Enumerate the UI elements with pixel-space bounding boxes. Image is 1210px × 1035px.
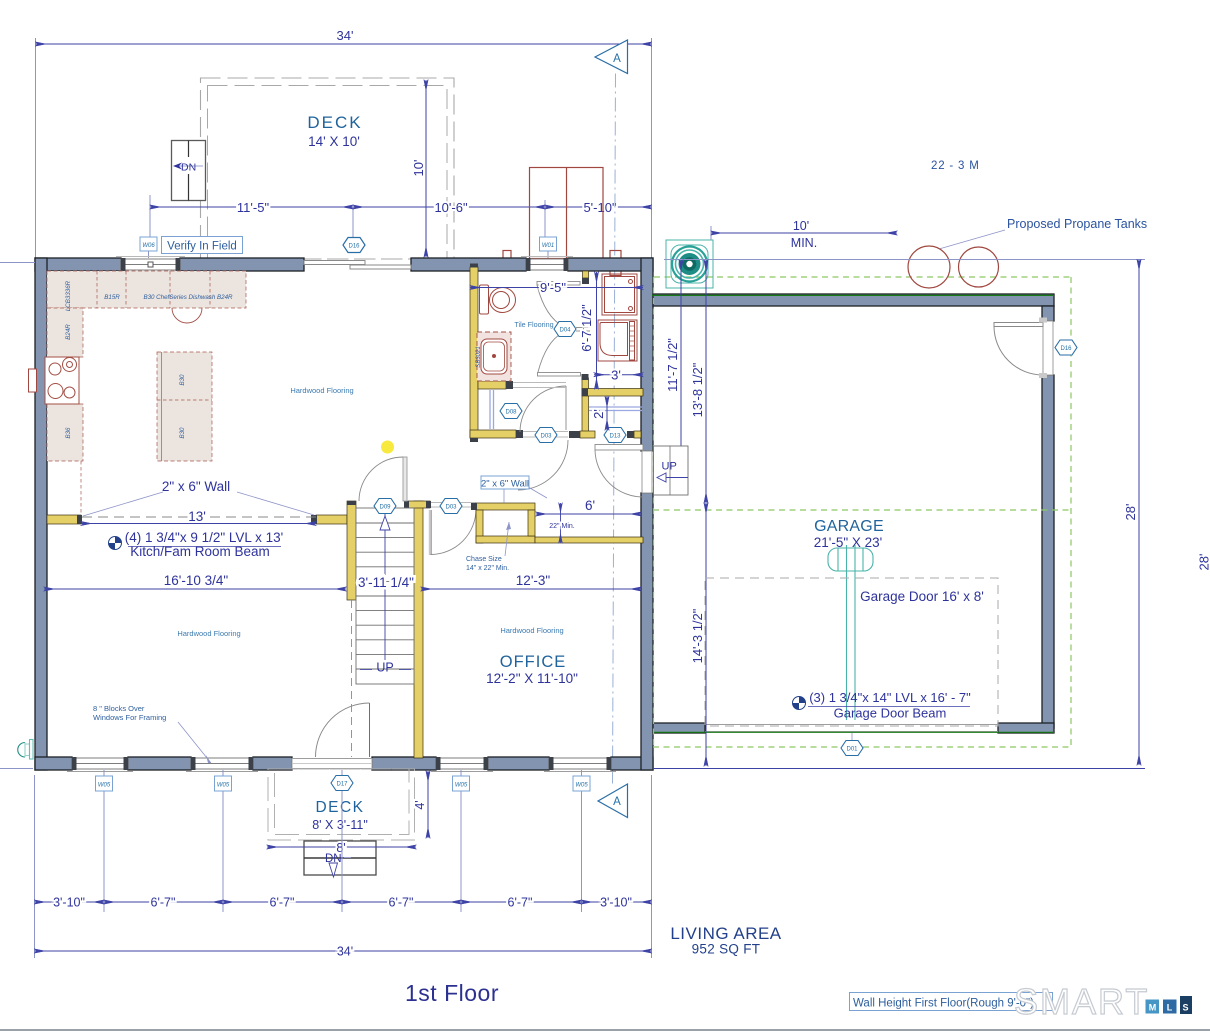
svg-text:S: S bbox=[1182, 1003, 1188, 1013]
svg-text:4': 4' bbox=[413, 800, 427, 809]
svg-text:D03: D03 bbox=[540, 434, 552, 440]
svg-text:M: M bbox=[1149, 1003, 1157, 1013]
svg-text:Wall Height First Floor(Rough: Wall Height First Floor(Rough 9'-0") bbox=[853, 998, 1034, 1010]
svg-text:2" x 6" Wall: 2" x 6" Wall bbox=[481, 479, 529, 490]
svg-text:3'-10": 3'-10" bbox=[600, 896, 632, 910]
svg-text:14' X 10': 14' X 10' bbox=[308, 134, 360, 149]
svg-text:13': 13' bbox=[188, 509, 206, 524]
svg-text:11'-5": 11'-5" bbox=[237, 200, 270, 215]
svg-text:D16: D16 bbox=[348, 244, 360, 250]
svg-text:DECK: DECK bbox=[307, 113, 362, 132]
svg-text:(4) 1 3/4"x 9 1/2" LVL x 13': (4) 1 3/4"x 9 1/2" LVL x 13' bbox=[125, 530, 284, 545]
svg-text:Hardwood Flooring: Hardwood Flooring bbox=[500, 626, 563, 635]
svg-text:28': 28' bbox=[1197, 554, 1210, 571]
svg-text:W06: W06 bbox=[142, 243, 155, 249]
svg-text:6'-7 1/2": 6'-7 1/2" bbox=[579, 304, 594, 352]
svg-text:13'-8 1/2": 13'-8 1/2" bbox=[690, 362, 705, 417]
svg-text:16'-10 3/4": 16'-10 3/4" bbox=[164, 573, 229, 588]
svg-text:14" x 22" Min.: 14" x 22" Min. bbox=[466, 565, 509, 572]
svg-text:Verify In Field: Verify In Field bbox=[167, 241, 237, 253]
svg-text:34': 34' bbox=[337, 28, 354, 43]
svg-text:LIVING AREA: LIVING AREA bbox=[670, 924, 781, 943]
svg-text:SB3021: SB3021 bbox=[476, 346, 482, 367]
svg-text:11'-7 1/2": 11'-7 1/2" bbox=[665, 338, 680, 392]
svg-text:6'-7": 6'-7" bbox=[151, 896, 176, 910]
svg-text:1st Floor: 1st Floor bbox=[405, 980, 499, 1006]
svg-text:2" x 6" Wall: 2" x 6" Wall bbox=[162, 479, 230, 494]
svg-text:22 - 3 M: 22 - 3 M bbox=[931, 160, 980, 172]
svg-text:D16: D16 bbox=[1060, 346, 1072, 352]
svg-text:B15R: B15R bbox=[104, 294, 120, 301]
svg-text:10': 10' bbox=[793, 219, 809, 233]
svg-text:3'-10": 3'-10" bbox=[53, 896, 85, 910]
svg-text:OFFICE: OFFICE bbox=[500, 653, 567, 671]
svg-text:8 " Blocks Over: 8 " Blocks Over bbox=[93, 704, 145, 713]
svg-text:Garage Door Beam: Garage Door Beam bbox=[834, 706, 947, 721]
svg-text:28': 28' bbox=[1123, 504, 1138, 521]
svg-text:W05: W05 bbox=[455, 783, 468, 789]
svg-text:SMART: SMART bbox=[1014, 981, 1149, 1022]
svg-text:D09: D09 bbox=[379, 505, 391, 511]
svg-text:W01: W01 bbox=[542, 243, 554, 249]
svg-text:B36: B36 bbox=[65, 427, 72, 439]
svg-text:Tile Flooring: Tile Flooring bbox=[514, 320, 553, 329]
svg-text:(3) 1 3/4"x 14" LVL x 16' - 7": (3) 1 3/4"x 14" LVL x 16' - 7" bbox=[809, 690, 971, 705]
svg-text:952 SQ FT: 952 SQ FT bbox=[692, 942, 761, 957]
svg-text:6': 6' bbox=[585, 498, 595, 513]
svg-text:UP: UP bbox=[376, 661, 393, 675]
svg-text:W05: W05 bbox=[98, 783, 111, 789]
svg-text:8': 8' bbox=[336, 841, 345, 855]
svg-text:A: A bbox=[613, 796, 621, 808]
svg-text:3': 3' bbox=[611, 368, 621, 383]
svg-text:6'-7": 6'-7" bbox=[270, 896, 295, 910]
svg-text:D04: D04 bbox=[559, 328, 571, 334]
svg-text:B30: B30 bbox=[179, 374, 186, 386]
svg-text:2': 2' bbox=[591, 409, 606, 419]
svg-text:12'-3": 12'-3" bbox=[516, 573, 551, 588]
svg-text:5'-10": 5'-10" bbox=[583, 200, 617, 215]
svg-text:Chase Size: Chase Size bbox=[466, 556, 502, 563]
svg-text:14'-3 1/2": 14'-3 1/2" bbox=[690, 608, 705, 663]
svg-text:D08: D08 bbox=[505, 410, 517, 416]
svg-text:6'-7": 6'-7" bbox=[508, 896, 533, 910]
svg-text:A: A bbox=[613, 53, 621, 65]
svg-text:Kitch/Fam Room Beam: Kitch/Fam Room Beam bbox=[130, 544, 270, 559]
svg-text:B30: B30 bbox=[179, 427, 186, 439]
svg-text:Proposed Propane Tanks: Proposed Propane Tanks bbox=[1007, 217, 1147, 231]
svg-text:GARAGE: GARAGE bbox=[814, 518, 884, 535]
svg-text:UP: UP bbox=[662, 461, 677, 473]
svg-text:Windows For Framing: Windows For Framing bbox=[93, 713, 166, 722]
svg-text:DN: DN bbox=[181, 162, 196, 174]
svg-text:D17: D17 bbox=[336, 782, 348, 788]
svg-text:W05: W05 bbox=[575, 783, 588, 789]
svg-text:10': 10' bbox=[411, 160, 426, 177]
svg-text:D01: D01 bbox=[846, 747, 858, 753]
svg-text:Garage Door 16' x 8': Garage Door 16' x 8' bbox=[860, 589, 984, 604]
svg-text:Hardwood Flooring: Hardwood Flooring bbox=[177, 629, 240, 638]
svg-text:9'-5": 9'-5" bbox=[540, 280, 566, 295]
svg-text:D13: D13 bbox=[609, 434, 621, 440]
svg-text:22" Min.: 22" Min. bbox=[549, 523, 574, 530]
svg-text:L: L bbox=[1167, 1003, 1173, 1013]
svg-text:Hardwood Flooring: Hardwood Flooring bbox=[290, 386, 353, 395]
svg-text:6'-7": 6'-7" bbox=[389, 896, 414, 910]
svg-text:W05: W05 bbox=[217, 783, 230, 789]
svg-text:34': 34' bbox=[337, 945, 353, 959]
svg-text:8' X 3'-11": 8' X 3'-11" bbox=[312, 818, 368, 832]
svg-text:DECK: DECK bbox=[315, 799, 364, 816]
svg-text:D03: D03 bbox=[445, 505, 457, 511]
svg-text:10'-6": 10'-6" bbox=[434, 200, 468, 215]
svg-text:12'-2" X 11'-10": 12'-2" X 11'-10" bbox=[486, 671, 578, 686]
svg-text:LCB3336R: LCB3336R bbox=[65, 280, 72, 311]
svg-text:B30 ChefSeries Dishwash B24R: B30 ChefSeries Dishwash B24R bbox=[143, 294, 233, 301]
svg-text:B24R: B24R bbox=[65, 324, 72, 340]
svg-text:MIN.: MIN. bbox=[791, 236, 817, 250]
svg-text:3'-11 1/4": 3'-11 1/4" bbox=[358, 575, 414, 590]
